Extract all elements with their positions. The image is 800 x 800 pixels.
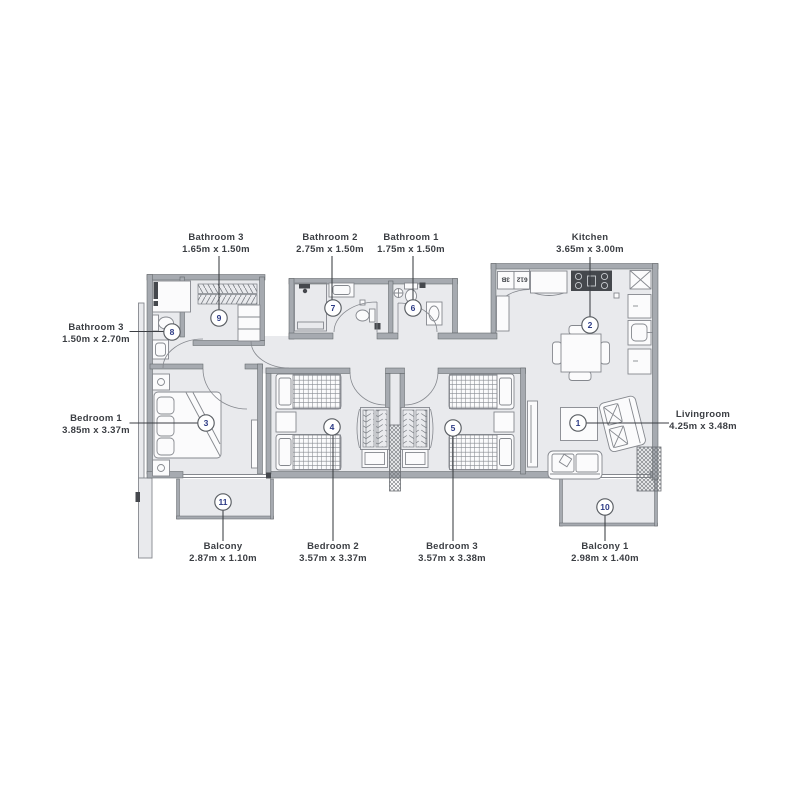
kitchen-counter-column [628, 295, 653, 375]
label-bedroom1-dims: 3.85m x 3.37m [62, 425, 130, 436]
shelf-stack-icon [238, 305, 260, 341]
badge-bedroom1: 3 [198, 415, 214, 431]
svg-text:7: 7 [331, 303, 336, 313]
sliding-door-balcony [183, 475, 267, 478]
badge-bathroom1: 6 [405, 300, 421, 316]
kitchen-sink-icon [628, 321, 653, 346]
label-bedroom3-dims: 3.57m x 3.38m [418, 553, 486, 564]
nightstand-icon [153, 374, 170, 390]
svg-text:2: 2 [588, 320, 593, 330]
label-bathroom1-name: Bathroom 1 [383, 232, 439, 243]
sofa-icon [548, 451, 602, 479]
chair-icon [601, 342, 610, 364]
svg-text:6: 6 [411, 303, 416, 313]
sink-icon [329, 283, 354, 297]
label-bathroom3-ensuite-name: Bathroom 3 [68, 322, 123, 333]
hanging-rail-icon [198, 284, 257, 294]
unit-type-tag: 3B [501, 276, 510, 283]
service-shaft-hatch [390, 425, 401, 491]
pillow-icon [157, 397, 174, 414]
single-bed-icon [276, 374, 341, 409]
single-bed-icon [449, 435, 514, 471]
svg-text:4: 4 [330, 422, 335, 432]
pillow-icon [279, 439, 291, 466]
label-bathroom3-ensuite-dims: 1.50m x 2.70m [62, 334, 130, 345]
entry-closet-icon [497, 296, 510, 331]
label-bedroom2-name: Bedroom 2 [307, 541, 359, 552]
label-bathroom3-closet-name: Bathroom 3 [188, 232, 243, 243]
svg-text:5: 5 [451, 423, 456, 433]
single-bed-icon [449, 374, 514, 409]
pillow-icon [500, 378, 512, 405]
washer-icon [394, 289, 403, 298]
dresser-icon [252, 420, 258, 468]
label-balcony1-dims: 2.98m x 1.40m [571, 553, 639, 564]
label-bedroom3-name: Bedroom 3 [426, 541, 478, 552]
counter-cabinet-icon [531, 271, 568, 296]
blanket [450, 375, 498, 409]
pillow-icon [500, 439, 512, 466]
hanging-rail-icon [198, 295, 257, 305]
svg-text:8: 8 [170, 327, 175, 337]
label-bathroom2-dims: 2.75m x 1.50m [296, 244, 364, 255]
single-bed-icon [276, 435, 341, 471]
badge-bathroom3-closet: 9 [211, 310, 227, 326]
chair-icon [569, 372, 591, 381]
pillow-icon [279, 378, 291, 405]
shower-icon [153, 281, 191, 312]
svg-text:9: 9 [217, 313, 222, 323]
label-bathroom1-dims: 1.75m x 1.50m [377, 244, 445, 255]
unit-number-tag: 612 [516, 276, 527, 283]
label-bathroom3-closet-dims: 1.65m x 1.50m [182, 244, 250, 255]
corner-sink-icon [630, 271, 651, 290]
label-kitchen-name: Kitchen [572, 232, 609, 243]
label-balcony-dims: 2.87m x 1.10m [189, 553, 257, 564]
nightstand-icon [276, 412, 296, 432]
tv-unit-icon [528, 401, 538, 467]
nightstand-icon [153, 460, 170, 476]
badge-bathroom3-ensuite: 8 [164, 324, 180, 340]
svg-text:3: 3 [204, 418, 209, 428]
wardrobe-icon [357, 408, 389, 468]
badge-balcony: 11 [215, 494, 231, 510]
label-livingroom-dims: 4.25m x 3.48m [669, 421, 737, 432]
pillow-icon [157, 416, 174, 436]
badge-bathroom2: 7 [325, 300, 341, 316]
svg-text:1: 1 [576, 418, 581, 428]
badge-kitchen: 2 [582, 317, 598, 333]
stove-icon [571, 271, 612, 292]
badge-bedroom2: 4 [324, 419, 340, 435]
dining-table-icon [553, 326, 610, 381]
badge-bedroom3: 5 [445, 420, 461, 436]
chair-icon [553, 342, 562, 364]
outlet-icon [614, 293, 619, 298]
label-balcony1-name: Balcony 1 [581, 541, 629, 552]
label-balcony-name: Balcony [204, 541, 243, 552]
svg-text:10: 10 [600, 502, 610, 512]
pillow-icon [157, 438, 174, 455]
entry-unit-tag: 3B 612 [498, 272, 531, 290]
toilet-icon [356, 309, 375, 322]
blanket [293, 375, 341, 409]
nightstand-icon [494, 412, 514, 432]
label-livingroom-name: Livingroom [676, 409, 730, 420]
badge-livingroom: 1 [570, 415, 586, 431]
floor-plan: 3B 612 [0, 0, 800, 800]
blanket [450, 435, 498, 470]
svg-text:11: 11 [219, 497, 228, 507]
floor-plan-page: 3B 612 [0, 0, 800, 800]
label-bedroom1-name: Bedroom 1 [70, 413, 122, 424]
ac-unit-hatch [637, 447, 661, 491]
badge-balcony1: 10 [597, 499, 613, 515]
label-kitchen-dims: 3.65m x 3.00m [556, 244, 624, 255]
label-bedroom2-dims: 3.57m x 3.37m [299, 553, 367, 564]
label-bathroom2-name: Bathroom 2 [302, 232, 357, 243]
wardrobe-icon [401, 408, 433, 468]
